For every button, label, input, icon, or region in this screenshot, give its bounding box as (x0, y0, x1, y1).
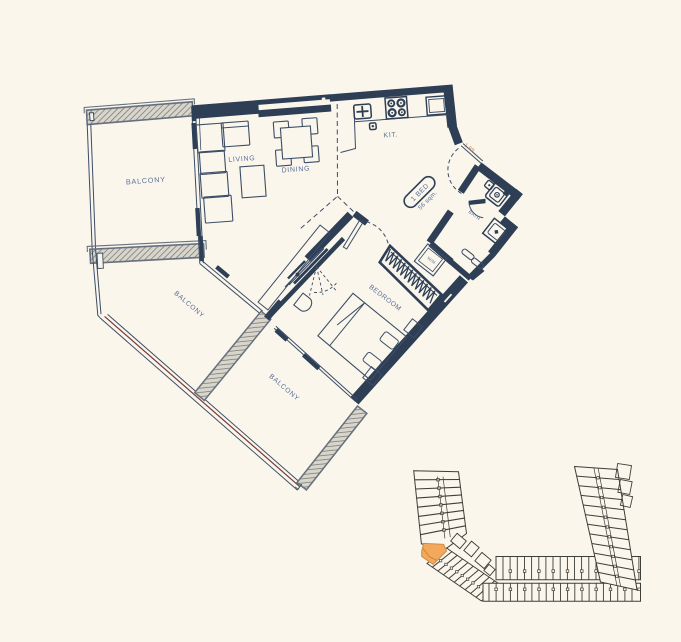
svg-text:KIT.: KIT. (383, 131, 398, 139)
